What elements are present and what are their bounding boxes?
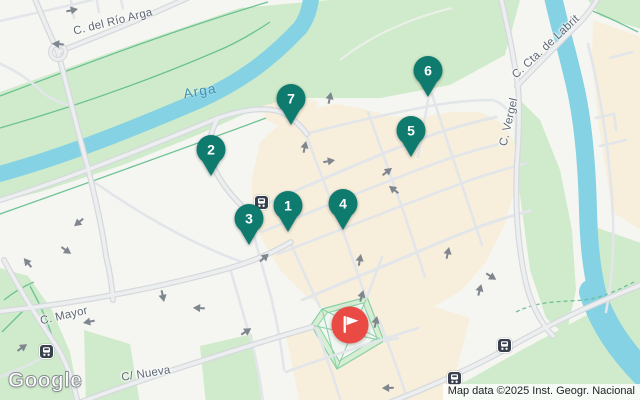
svg-text:4: 4	[339, 196, 347, 212]
transit-station-icon[interactable]	[497, 338, 512, 353]
google-logo[interactable]: Google	[8, 369, 82, 393]
map-pin-5[interactable]: 5	[394, 115, 428, 159]
map-pin-6[interactable]: 6	[411, 55, 445, 99]
svg-text:6: 6	[424, 63, 432, 79]
destination-marker[interactable]	[330, 305, 370, 345]
svg-text:1: 1	[284, 198, 292, 214]
map-attribution: Map data ©2025 Inst. Geogr. Nacional	[443, 384, 640, 400]
map-pin-1[interactable]: 1	[271, 190, 305, 234]
map-pin-3[interactable]: 3	[232, 203, 266, 247]
svg-text:7: 7	[287, 91, 295, 107]
transit-station-icon[interactable]	[39, 344, 54, 359]
map-pin-4[interactable]: 4	[326, 188, 360, 232]
svg-text:5: 5	[407, 123, 415, 139]
svg-text:3: 3	[245, 211, 253, 227]
map-canvas[interactable]: C. del Río Arga Arga C. Cta. de Labrit C…	[0, 0, 640, 400]
map-base-layer	[0, 0, 640, 400]
map-pin-7[interactable]: 7	[274, 83, 308, 127]
map-pin-2[interactable]: 2	[194, 134, 228, 178]
svg-text:2: 2	[207, 142, 215, 158]
